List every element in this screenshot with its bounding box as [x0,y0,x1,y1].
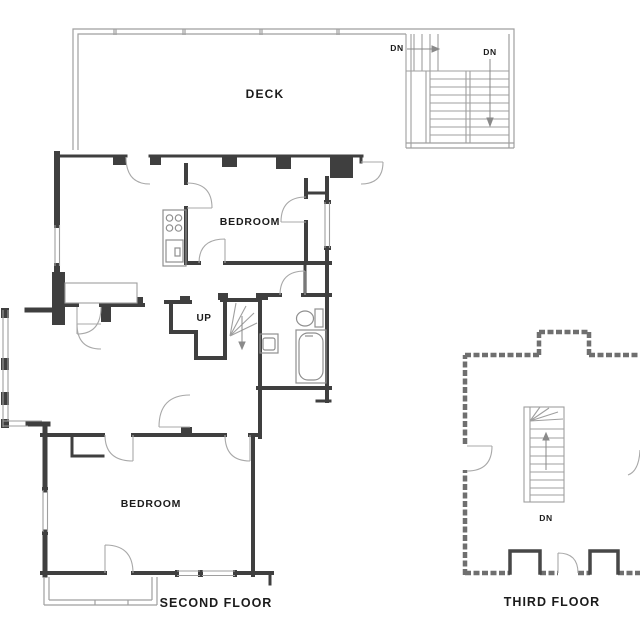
third-floor-dormers [510,551,618,573]
deck [73,29,514,150]
counter [65,283,137,303]
up-label: UP [196,313,211,324]
second-floor-caption: SECOND FLOOR [160,596,273,610]
bathtub [296,330,326,383]
second-floor-walls [27,154,362,584]
kitchen-stove [163,210,186,266]
bathroom-toilet [297,309,324,327]
dn-third-label: DN [539,513,552,523]
bedroom-bottom-label: BEDROOM [121,498,181,510]
third-floor-staircase [524,407,564,502]
third-floor-caption: THIRD FLOOR [504,595,600,609]
dn-deck-upper-label: DN [390,43,403,53]
bedroom-top-label: BEDROOM [220,216,280,228]
deck-stair-arrows [407,46,493,126]
deck-label: DECK [246,87,285,101]
wall-pilasters [1,156,353,577]
third-floor-doors [467,446,640,573]
floor-plan-canvas: DECK DN DN BEDROOM UP BEDROOM SECOND FLO… [0,0,640,640]
dn-deck-lower-label: DN [483,47,496,57]
center-staircase [230,303,257,336]
porch-outline [44,577,157,605]
bathroom-sink [260,334,278,353]
center-staircase-arrow [239,316,245,349]
floor-plan-drawing: DECK DN DN BEDROOM UP BEDROOM SECOND FLO… [0,0,640,640]
